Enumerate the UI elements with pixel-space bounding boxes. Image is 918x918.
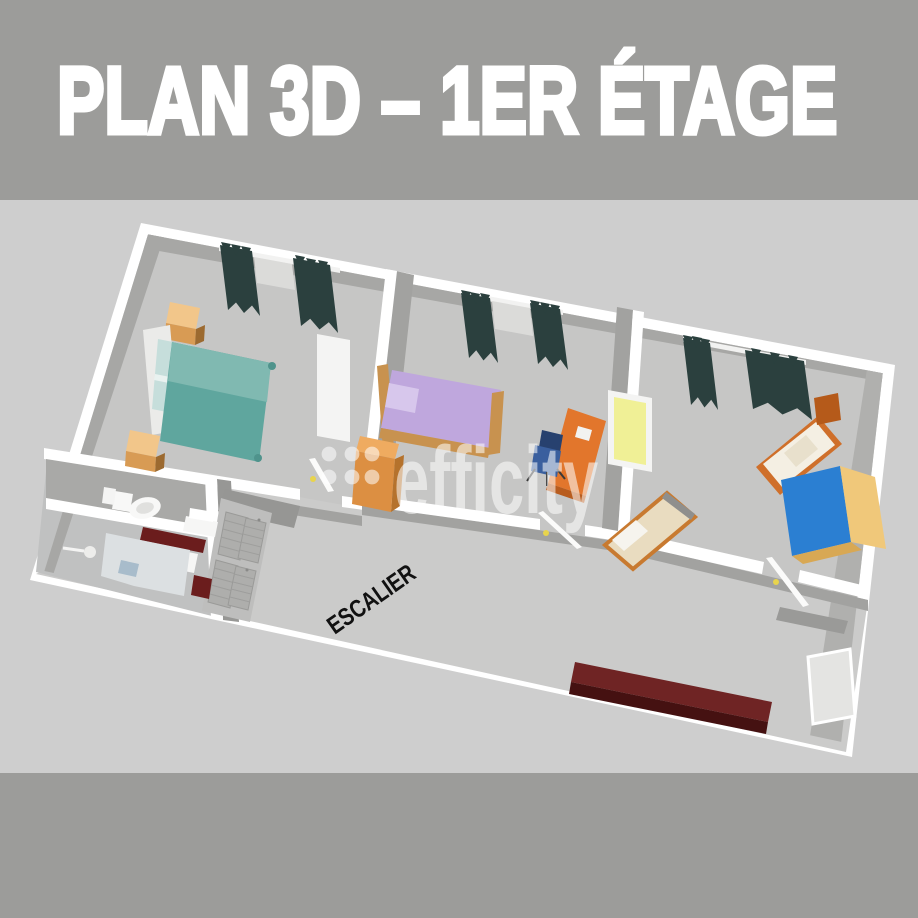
svg-text:PLAN 3D – 1ER ÉTAGE: PLAN 3D – 1ER ÉTAGE (57, 47, 837, 153)
svg-text:efficity: efficity (394, 427, 598, 534)
